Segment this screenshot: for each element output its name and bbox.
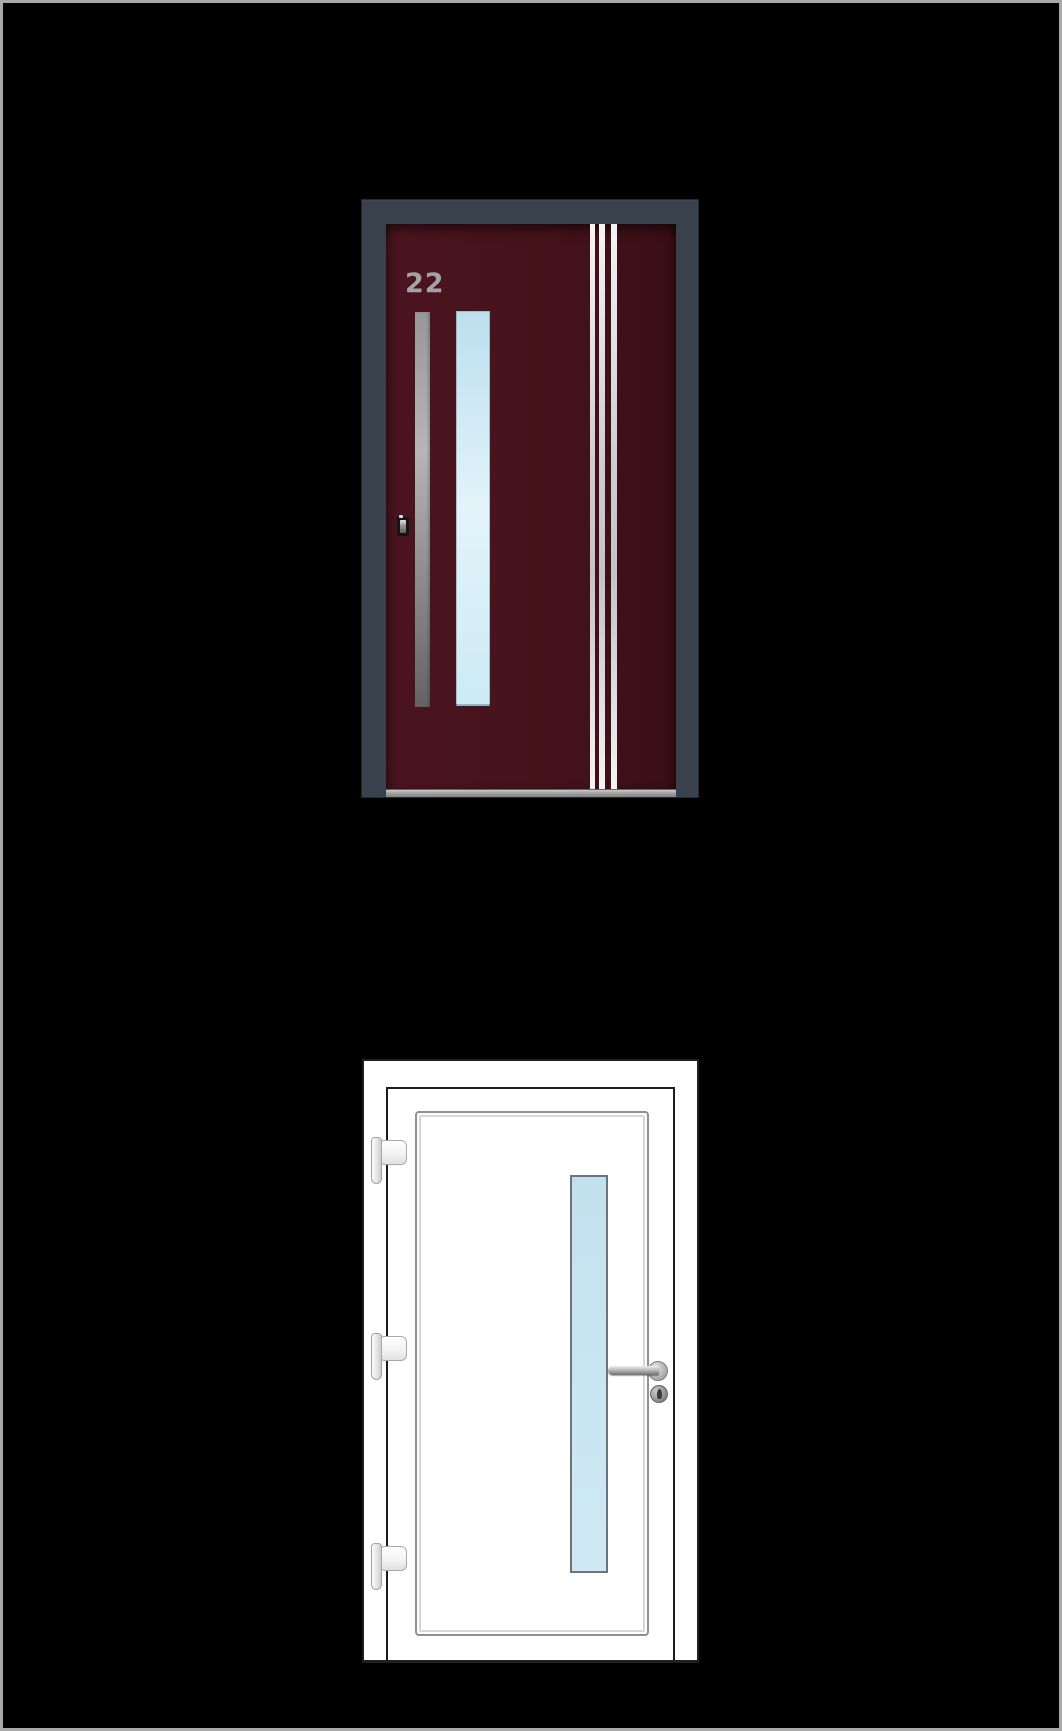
decor-stripe xyxy=(599,224,605,789)
lock-cylinder-icon xyxy=(397,517,409,536)
top-door-image[interactable]: 22 xyxy=(361,199,699,798)
lever-handle xyxy=(608,1366,659,1375)
lock-cylinder-core xyxy=(400,520,406,533)
top-door-panel: 22 xyxy=(386,224,676,789)
door-handle-bar xyxy=(415,312,430,707)
bottom-door-image[interactable] xyxy=(362,1059,699,1663)
glass-strip xyxy=(570,1175,608,1573)
hinge-block xyxy=(381,1336,407,1361)
lock-cylinder-icon xyxy=(650,1385,668,1403)
glass-strip xyxy=(456,311,490,706)
hinge-block xyxy=(381,1546,407,1571)
decor-stripe xyxy=(611,224,617,789)
hinge-block xyxy=(381,1140,407,1165)
decor-stripe xyxy=(590,224,595,789)
door-threshold xyxy=(386,789,676,797)
keyhole-icon xyxy=(657,1389,662,1399)
lock-latch-icon xyxy=(399,515,403,518)
canvas: 22 xyxy=(0,0,1062,1731)
house-number-label: 22 xyxy=(405,270,445,297)
